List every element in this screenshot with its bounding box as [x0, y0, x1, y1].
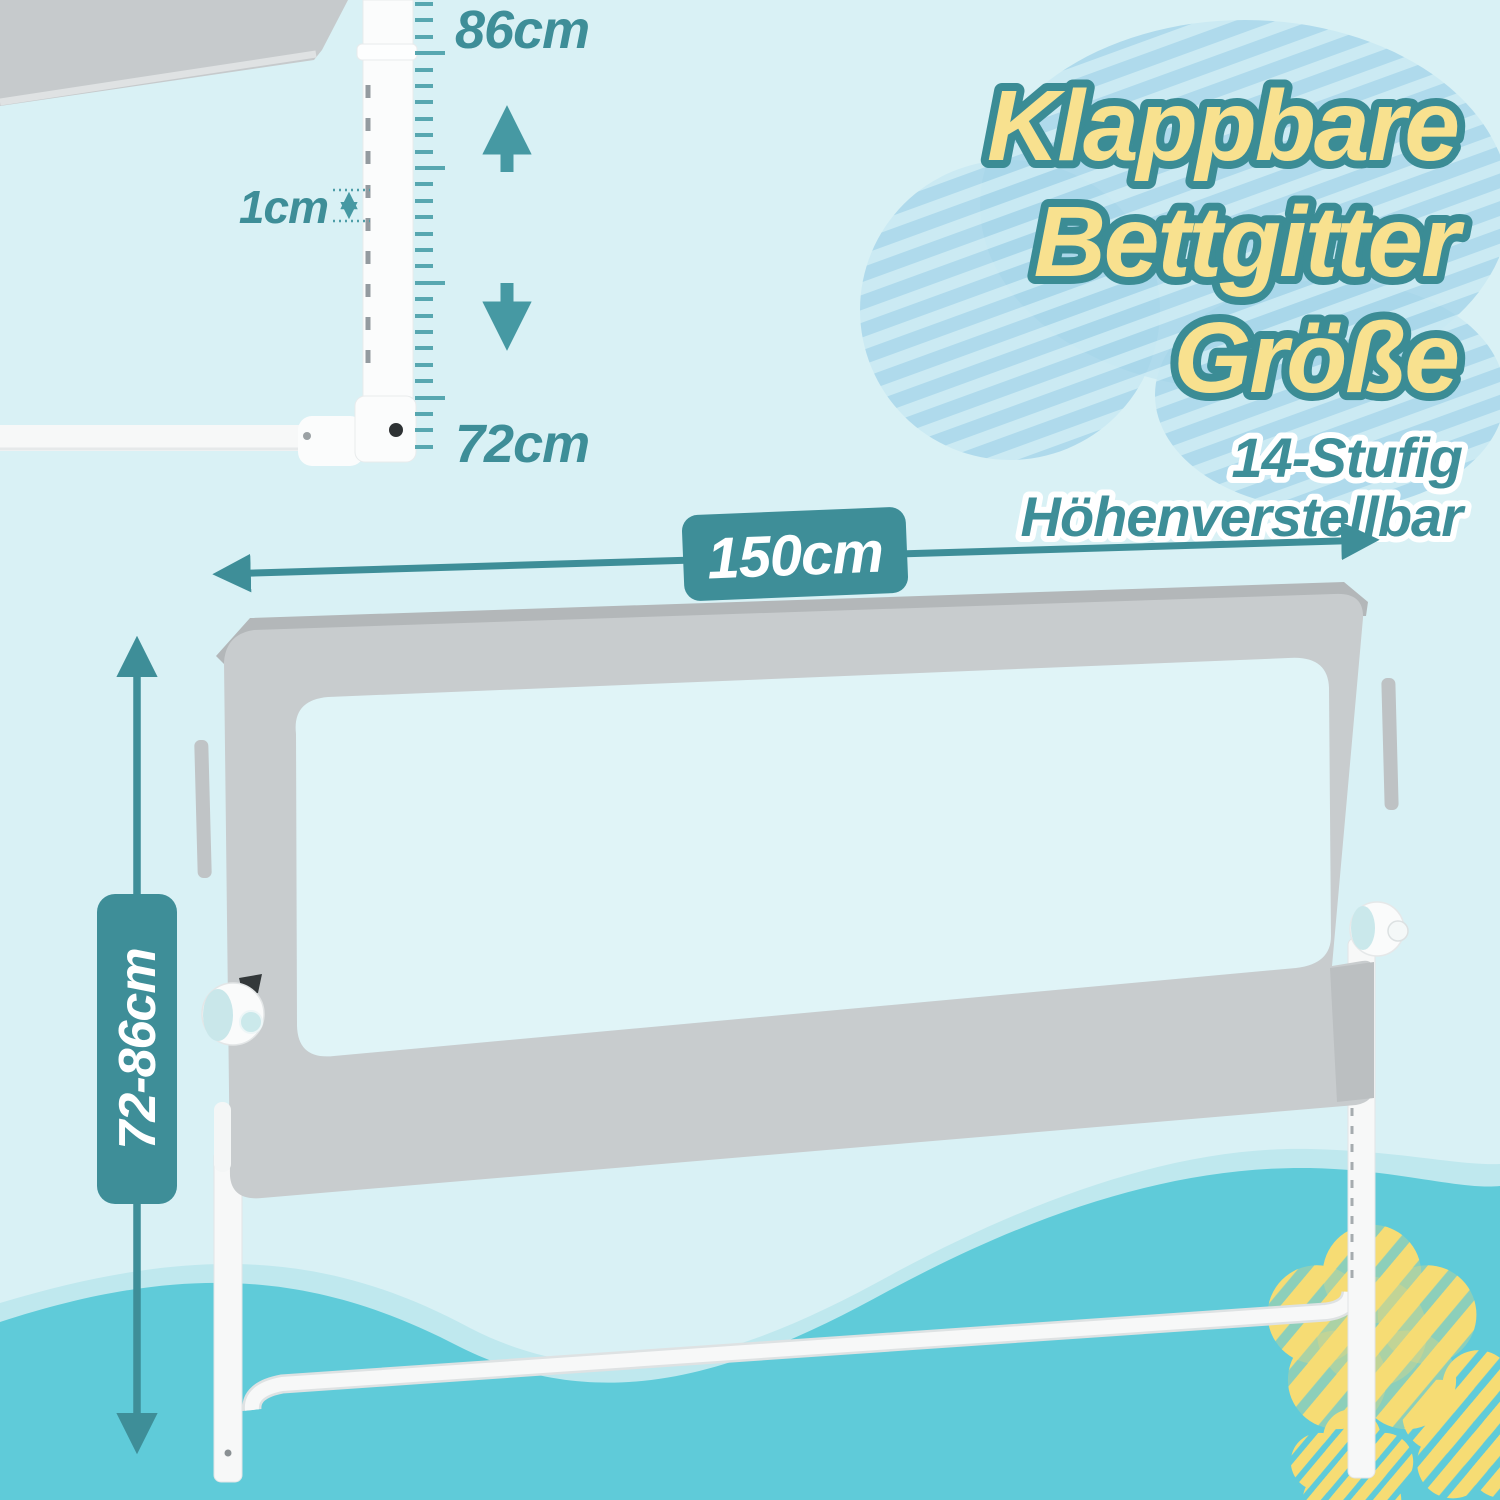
- subtitle-line-1: 14-Stufig: [1231, 426, 1462, 489]
- left-hinge-strip: [214, 1102, 231, 1172]
- subtitle-line-2: Höhenverstellbar: [1021, 485, 1467, 548]
- band-right-sleeve: [1330, 962, 1374, 1102]
- left-fold-knob: [202, 983, 264, 1045]
- step-measure: 1cm: [239, 181, 370, 233]
- adjustable-pole: [363, 0, 413, 404]
- infographic-scene: Klappbare Bettgitter Größe 14-Stufig Höh…: [0, 0, 1500, 1500]
- left-leg: [214, 1150, 242, 1482]
- ruler-ticks-short: [415, 4, 433, 447]
- title-line-1: Klappbare: [987, 70, 1458, 182]
- length-label: 150cm: [706, 520, 884, 592]
- height-range-label: 72-86cm: [109, 948, 167, 1149]
- pole-base-cap: [355, 396, 416, 462]
- right-fold-knob: [1350, 902, 1408, 956]
- right-strap-tab: [1381, 678, 1398, 810]
- min-height-label: 72cm: [455, 414, 589, 474]
- title-line-2: Bettgitter: [1034, 186, 1466, 298]
- step-label: 1cm: [239, 181, 328, 233]
- fabric-wedge: [0, 0, 348, 106]
- closeup-photo-fragment: [0, 0, 417, 466]
- infographic-canvas: Klappbare Bettgitter Größe 14-Stufig Höh…: [0, 0, 1500, 1500]
- max-height-label: 86cm: [455, 0, 589, 60]
- left-strap-tab: [194, 740, 212, 878]
- title-line-3: Größe: [1174, 302, 1458, 414]
